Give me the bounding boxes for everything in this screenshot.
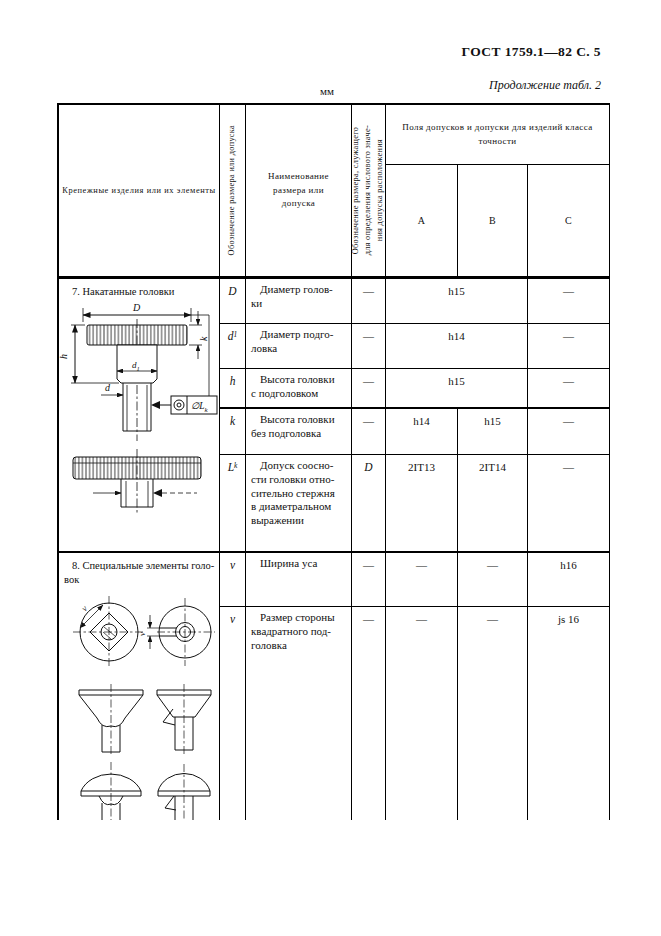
value-cell-a: h14: [386, 409, 458, 455]
name-cell: Высота головки с подголовком: [246, 369, 352, 409]
header-fasteners: Крепежные изделия или их элементы: [59, 105, 220, 279]
header-class-b: В: [458, 165, 528, 279]
header-tolerance-group-label: Поля допусков и допуски для изделий клас…: [402, 121, 592, 149]
value-cell-c: —: [528, 324, 610, 369]
value-cell-a: —: [386, 607, 458, 820]
name-cell: Ширина уса: [246, 553, 352, 607]
value-cell-c: —: [528, 455, 610, 553]
value-cell-c: js 16: [528, 607, 610, 820]
header-name-label: Наименование размера или допуска: [268, 170, 329, 212]
tolerance-table: Крепежные изделия или их элементы Обозна…: [57, 103, 610, 820]
dim-label-v-nib: v: [137, 632, 147, 636]
dim-label-h: h: [59, 354, 69, 359]
section7-drawing-cell: 7. Накатанные головки: [59, 279, 220, 553]
header-name: Наименование размера или допуска: [246, 105, 352, 279]
value-cell-c: h16: [528, 553, 610, 607]
value-cell-ab: h14: [386, 324, 528, 369]
value-cell-b: —: [458, 553, 528, 607]
section7-title: 7. Накатанные головки: [59, 279, 219, 299]
special-head-elements-drawing: v v: [59, 586, 220, 820]
symbol-cell: Lk: [220, 455, 246, 553]
ref-cell: —: [352, 553, 386, 607]
header-class-c: С: [528, 165, 610, 279]
name-cell: Диаметр голов- ки: [246, 279, 352, 324]
name-cell: Диаметр подго- ловка: [246, 324, 352, 369]
value-cell-a: 2IT13: [386, 455, 458, 553]
header-ref-symbol: Обозначение размера, служащего для опред…: [352, 105, 386, 279]
dim-label-v-square: v: [79, 604, 89, 614]
knurled-head-screw-drawing: D h k d1 d ∅Lk: [59, 299, 220, 549]
value-cell-b: h15: [458, 409, 528, 455]
name-cell: Высота головки без подголовка: [246, 409, 352, 455]
table-continuation-note: Продолжение табл. 2: [489, 78, 601, 93]
symbol-cell: k: [220, 409, 246, 455]
value-cell-ab: h15: [386, 369, 528, 409]
value-cell-ab: h15: [386, 279, 528, 324]
dim-label-d: d: [105, 382, 111, 393]
symbol-cell: d1: [220, 324, 246, 369]
ref-cell: —: [352, 607, 386, 820]
value-cell-c: —: [528, 279, 610, 324]
dim-label-k: k: [198, 336, 209, 341]
name-cell: Допуск соосно- сти головки отно- сительн…: [246, 455, 352, 553]
symbol-cell: D: [220, 279, 246, 324]
header-ref-symbol-label: Обозначение размера, служащего для опред…: [352, 125, 386, 255]
symbol-cell: h: [220, 369, 246, 409]
name-cell: Размер стороны квадратного под- головка: [246, 607, 352, 820]
header-symbol-label: Обозначение размера или допуска: [226, 125, 238, 255]
page-title: ГОСТ 1759.1—82 С. 5: [462, 44, 601, 60]
gost-document-page: ГОСТ 1759.1—82 С. 5 Продолжение табл. 2 …: [0, 0, 661, 936]
ref-cell: —: [352, 409, 386, 455]
units-label: мм: [320, 85, 334, 97]
header-fasteners-label: Крепежные изделия или их элементы: [62, 184, 216, 197]
ref-cell: D: [352, 455, 386, 553]
value-cell-b: 2IT14: [458, 455, 528, 553]
ref-cell: —: [352, 324, 386, 369]
value-cell-c: —: [528, 409, 610, 455]
value-cell-c: —: [528, 369, 610, 409]
symbol-cell: v: [220, 607, 246, 820]
section8-title: 8. Специальные элементы голо- вок: [59, 553, 219, 586]
symbol-cell: v: [220, 553, 246, 607]
ref-cell: —: [352, 279, 386, 324]
value-cell-b: —: [458, 607, 528, 820]
ref-cell: —: [352, 369, 386, 409]
value-cell-a: —: [386, 553, 458, 607]
header-tolerance-group: Поля допусков и допуски для изделий клас…: [386, 105, 610, 165]
dim-label-D: D: [132, 302, 141, 313]
section8-drawing-cell: 8. Специальные элементы голо- вок: [59, 553, 220, 820]
header-class-a: А: [386, 165, 458, 279]
header-symbol: Обозначение размера или допуска: [220, 105, 246, 279]
